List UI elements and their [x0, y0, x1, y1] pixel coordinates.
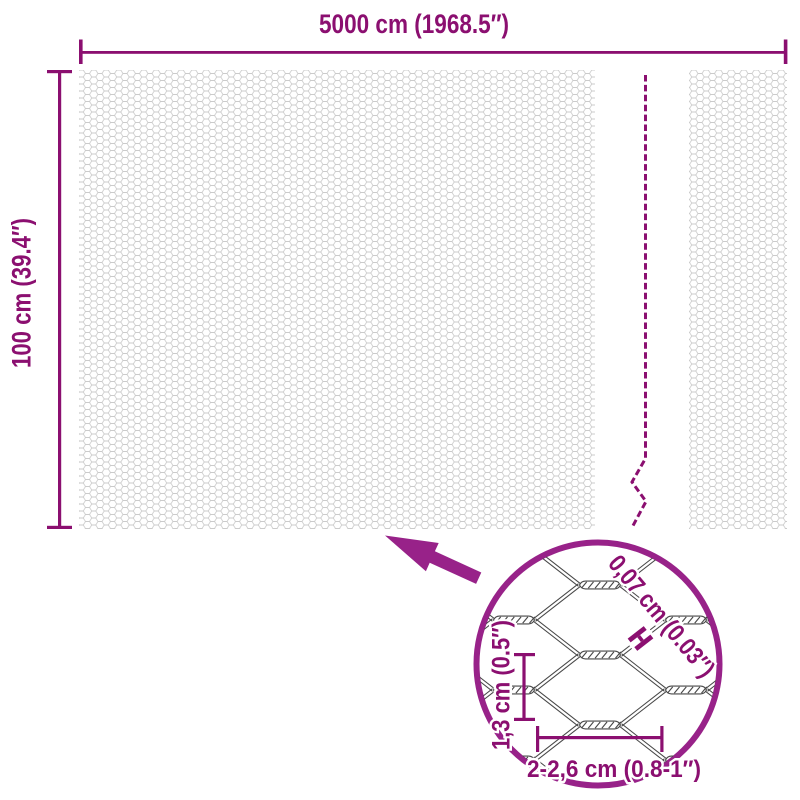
- svg-text:2-2,6 cm (0.8-1″): 2-2,6 cm (0.8-1″): [527, 756, 701, 783]
- svg-text:5000 cm (1968.5″): 5000 cm (1968.5″): [319, 9, 509, 39]
- svg-text:1,3 cm (0.5″): 1,3 cm (0.5″): [488, 620, 516, 750]
- svg-text:100 cm (39.4″): 100 cm (39.4″): [7, 218, 37, 368]
